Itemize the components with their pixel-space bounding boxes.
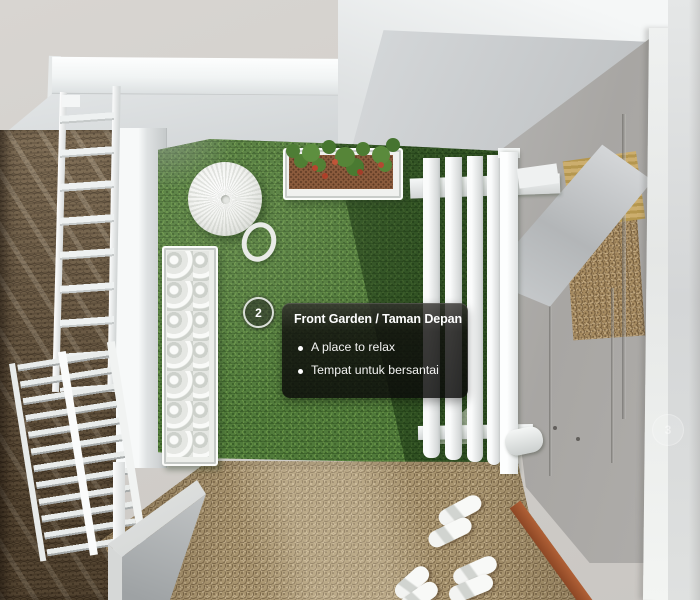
plant-leaves (286, 144, 300, 158)
plant-box (283, 148, 403, 200)
outer-wall-right (668, 0, 700, 600)
red-flowers (312, 165, 318, 171)
tooltip-title: Front Garden / Taman Depan (294, 312, 456, 326)
door-hardware-dot (576, 437, 580, 441)
fence-picket (467, 156, 483, 462)
garden-3d-viewport[interactable]: 3 2 Front Garden / Taman Depan A place t… (0, 0, 700, 600)
tooltip-bullet-text: Tempat untuk bersantai (311, 363, 439, 377)
low-garden-wall (95, 470, 210, 600)
waypoint-marker-faded[interactable]: 3 (652, 414, 684, 446)
gate-post (500, 152, 518, 474)
faded-marker-number: 3 (665, 423, 672, 437)
tooltip-bullet-text: A place to relax (311, 340, 395, 354)
marker-number: 2 (255, 306, 262, 320)
white-flowers (167, 251, 209, 457)
tooltip-bullet-list: A place to relax Tempat untuk bersantai (294, 340, 456, 377)
bullet-dot-icon (298, 369, 303, 374)
flower-planter (162, 246, 218, 466)
bullet-dot-icon (298, 346, 303, 351)
waypoint-marker-2[interactable]: 2 (243, 297, 274, 328)
tooltip-bullet: Tempat untuk bersantai (294, 363, 456, 377)
tooltip-bullet: A place to relax (294, 340, 456, 354)
door-groove (611, 288, 614, 463)
fence-picket (487, 155, 501, 465)
plant-box-soil (289, 155, 393, 189)
railing-bracket (62, 95, 80, 107)
parasol-center-cap (221, 195, 230, 204)
info-tooltip: Front Garden / Taman Depan A place to re… (282, 303, 468, 398)
